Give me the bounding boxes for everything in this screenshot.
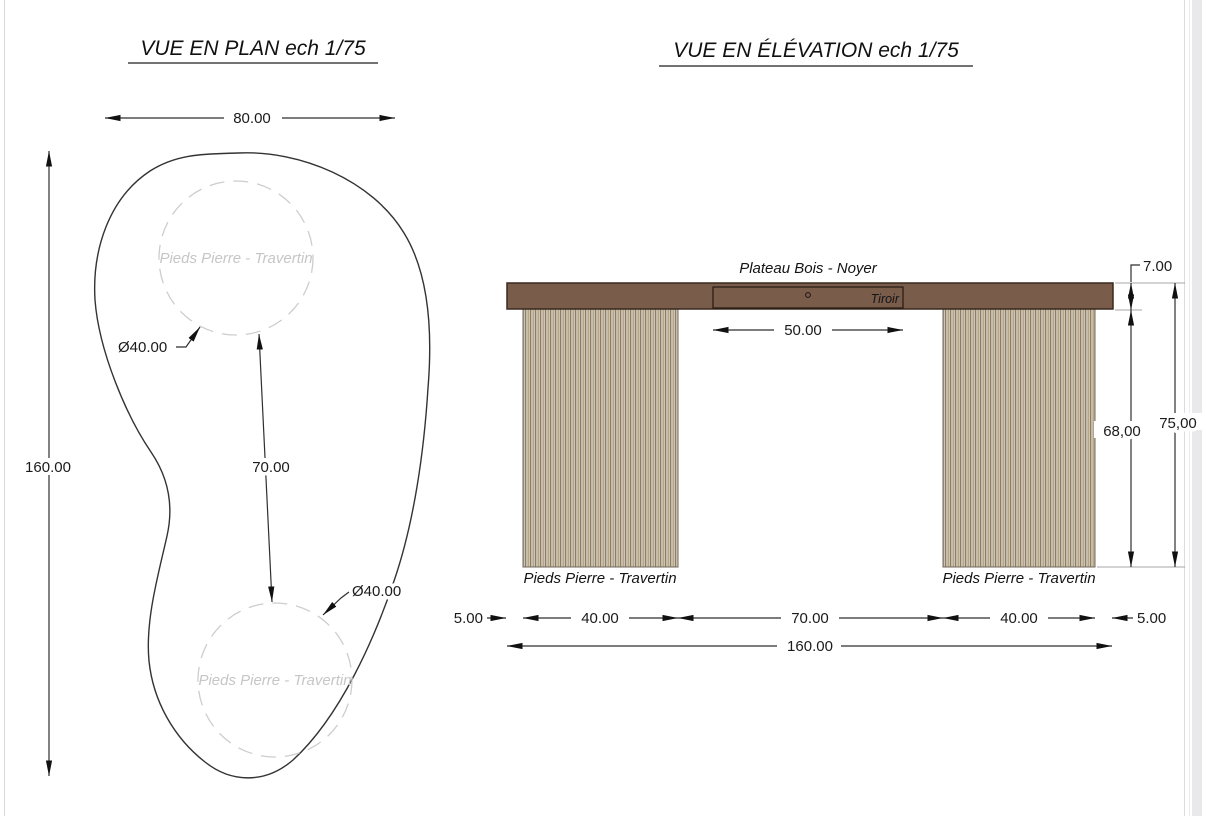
left-overhang-dim-text: 5.00: [454, 610, 483, 627]
technical-drawing-canvas: VUE EN PLAN ech 1/75 Pieds Pierre - Trav…: [0, 0, 1206, 816]
thickness-dim-leader: [1131, 265, 1140, 282]
plan-view-title: VUE EN PLAN ech 1/75: [140, 37, 366, 60]
elevation-left-leg: [523, 309, 678, 567]
left-leg-width-dim-text: 40.00: [581, 610, 619, 627]
leg-height-dim-text: 68,00: [1103, 423, 1141, 440]
plan-bottom-leg-label: Pieds Pierre - Travertin: [198, 672, 351, 689]
plan-bottom-diameter-text: Ø40.00: [352, 583, 401, 600]
total-width-dim-text: 160.00: [787, 638, 833, 655]
total-height-dim-text: 75,00: [1159, 415, 1197, 432]
plan-width-dim-text: 80.00: [233, 110, 271, 127]
plan-gap-dim-text: 70.00: [252, 459, 290, 476]
elevation-right-leg: [943, 309, 1095, 567]
plan-top-diameter-leader: [176, 327, 200, 347]
drawer-label: Tiroir: [871, 292, 900, 306]
plateau-label: Plateau Bois - Noyer: [739, 260, 878, 277]
plan-top-leg-label: Pieds Pierre - Travertin: [159, 250, 312, 267]
elevation-right-leg-label: Pieds Pierre - Travertin: [942, 570, 1095, 587]
right-overhang-dim-text: 5.00: [1137, 610, 1166, 627]
plan-top-diameter-text: Ø40.00: [118, 339, 167, 356]
span-dim-text: 70.00: [791, 610, 829, 627]
elevation-view: VUE EN ÉLÉVATION ech 1/75 Plateau Bois -…: [454, 39, 1206, 655]
elevation-view-title: VUE EN ÉLÉVATION ech 1/75: [673, 39, 959, 62]
right-leg-width-dim-text: 40.00: [1000, 610, 1038, 627]
thickness-dim-text: 7.00: [1143, 258, 1172, 275]
drawer-width-dim-text: 50.00: [784, 322, 822, 339]
plan-bottom-diameter-leader: [323, 592, 349, 615]
plan-height-dim-text: 160.00: [25, 459, 71, 476]
plan-view: VUE EN PLAN ech 1/75 Pieds Pierre - Trav…: [19, 37, 430, 778]
elevation-left-leg-label: Pieds Pierre - Travertin: [523, 570, 676, 587]
